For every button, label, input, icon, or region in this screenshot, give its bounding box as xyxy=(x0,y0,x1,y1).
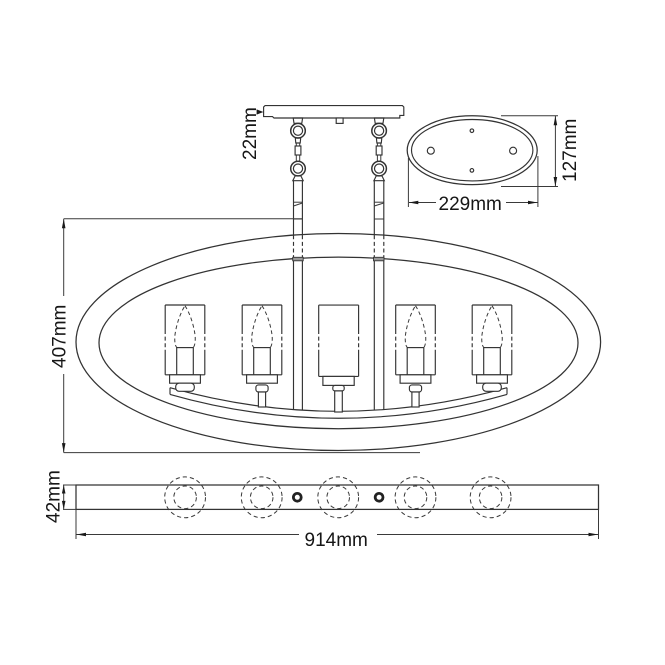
svg-text:229mm: 229mm xyxy=(439,194,502,215)
svg-text:407mm: 407mm xyxy=(50,305,71,368)
svg-text:127mm: 127mm xyxy=(560,119,581,182)
svg-text:22mm: 22mm xyxy=(240,107,261,160)
svg-text:914mm: 914mm xyxy=(305,530,368,551)
svg-text:42mm: 42mm xyxy=(44,470,65,523)
